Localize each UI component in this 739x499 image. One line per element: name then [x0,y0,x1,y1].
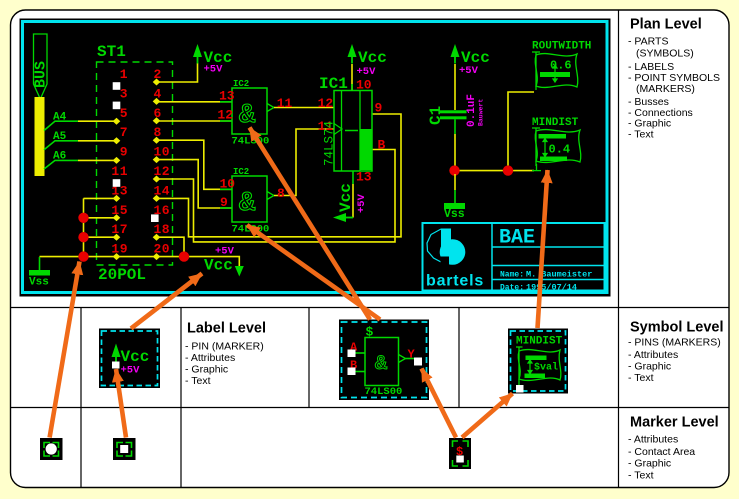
svg-text:13: 13 [356,170,372,185]
svg-text:Plan Level: Plan Level [630,17,702,33]
svg-text:(MARKERS): (MARKERS) [636,83,695,95]
svg-text:10: 10 [220,177,236,192]
svg-text:- Graphic: - Graphic [628,361,671,373]
svg-text:Name:: Name: [500,271,524,280]
svg-text:IC2: IC2 [233,79,249,89]
svg-text:12: 12 [318,96,334,111]
svg-text:- PARTS: - PARTS [628,36,668,48]
svg-text:9: 9 [375,101,383,116]
svg-text:10: 10 [356,78,372,93]
svg-text:BAE: BAE [499,227,535,250]
svg-text:0.6: 0.6 [550,59,572,73]
svg-text:- Attributes: - Attributes [628,434,678,446]
svg-text:$val: $val [534,362,558,374]
svg-text:74LS00: 74LS00 [232,136,270,148]
svg-text:M. Baumeister: M. Baumeister [526,270,592,280]
svg-text:MINDIST: MINDIST [516,336,563,348]
svg-text:Vcc: Vcc [358,49,387,67]
svg-text:ST1: ST1 [97,43,126,61]
svg-text:Label Level: Label Level [187,321,266,337]
svg-text:+5V: +5V [121,365,141,377]
svg-text:Vcc: Vcc [337,183,355,212]
svg-text:20POL: 20POL [98,266,146,284]
svg-text:Bauwert: Bauwert [478,99,485,126]
svg-text:+5V: +5V [356,193,368,213]
svg-text:- Graphic: - Graphic [185,364,228,376]
svg-text:+5V: +5V [459,65,479,77]
svg-text:- Text: - Text [628,372,654,384]
svg-text:1: 1 [120,67,128,82]
svg-text:IC2: IC2 [233,167,249,177]
svg-text:0.1uF: 0.1uF [466,94,478,127]
svg-text:Vss: Vss [444,208,465,221]
svg-text:3: 3 [120,86,128,101]
svg-text:1995/07/14: 1995/07/14 [526,283,577,293]
svg-text:(SYMBOLS): (SYMBOLS) [636,48,694,60]
svg-text:A5: A5 [53,131,67,143]
svg-text:- Attributes: - Attributes [628,349,678,361]
svg-text:MINDIST: MINDIST [532,117,579,129]
svg-text:5: 5 [120,106,128,121]
svg-text:- Text: - Text [628,470,654,482]
svg-text:+5V: +5V [357,66,377,78]
svg-text:A6: A6 [53,151,66,163]
svg-text:- PIN (MARKER): - PIN (MARKER) [185,341,264,353]
svg-text:11: 11 [111,164,128,179]
svg-text:0.4: 0.4 [549,143,571,157]
svg-text:Marker Level: Marker Level [630,415,719,431]
svg-text:ROUTWIDTH: ROUTWIDTH [532,41,591,53]
svg-text:17: 17 [111,222,128,237]
svg-text:- Text: - Text [185,375,211,387]
svg-text:Vcc: Vcc [204,257,233,275]
svg-text:B: B [378,138,386,153]
svg-text:&: & [239,101,256,131]
svg-text:- Graphic: - Graphic [628,458,671,470]
svg-text:- Attributes: - Attributes [185,352,235,364]
svg-text:19: 19 [111,242,128,257]
svg-text:+5V: +5V [204,64,224,76]
svg-text:Vss: Vss [29,277,49,289]
svg-text:&: & [375,353,387,376]
svg-text:bartels: bartels [426,273,484,290]
svg-text:74LS00: 74LS00 [365,386,403,398]
svg-text:9: 9 [120,145,128,160]
svg-text:BUS: BUS [33,61,50,88]
svg-text:7: 7 [120,125,128,140]
svg-text:Symbol Level: Symbol Level [630,320,723,336]
svg-text:- Text: - Text [628,129,654,141]
svg-text:Date:: Date: [500,284,524,293]
svg-text:Vcc: Vcc [121,348,150,366]
svg-text:8: 8 [277,186,285,201]
svg-text:A4: A4 [53,112,67,124]
svg-text:+5V: +5V [215,246,235,258]
svg-text:&: & [239,189,256,219]
svg-text:15: 15 [111,203,128,218]
svg-text:12: 12 [217,108,233,123]
svg-text:- PINS (MARKERS): - PINS (MARKERS) [628,337,721,349]
svg-text:C1: C1 [427,106,445,125]
svg-text:74LS74: 74LS74 [323,121,337,166]
svg-text:9: 9 [220,195,228,210]
svg-text:13: 13 [219,89,235,104]
svg-text:- Contact Area: - Contact Area [628,446,695,458]
svg-text:11: 11 [277,96,293,111]
